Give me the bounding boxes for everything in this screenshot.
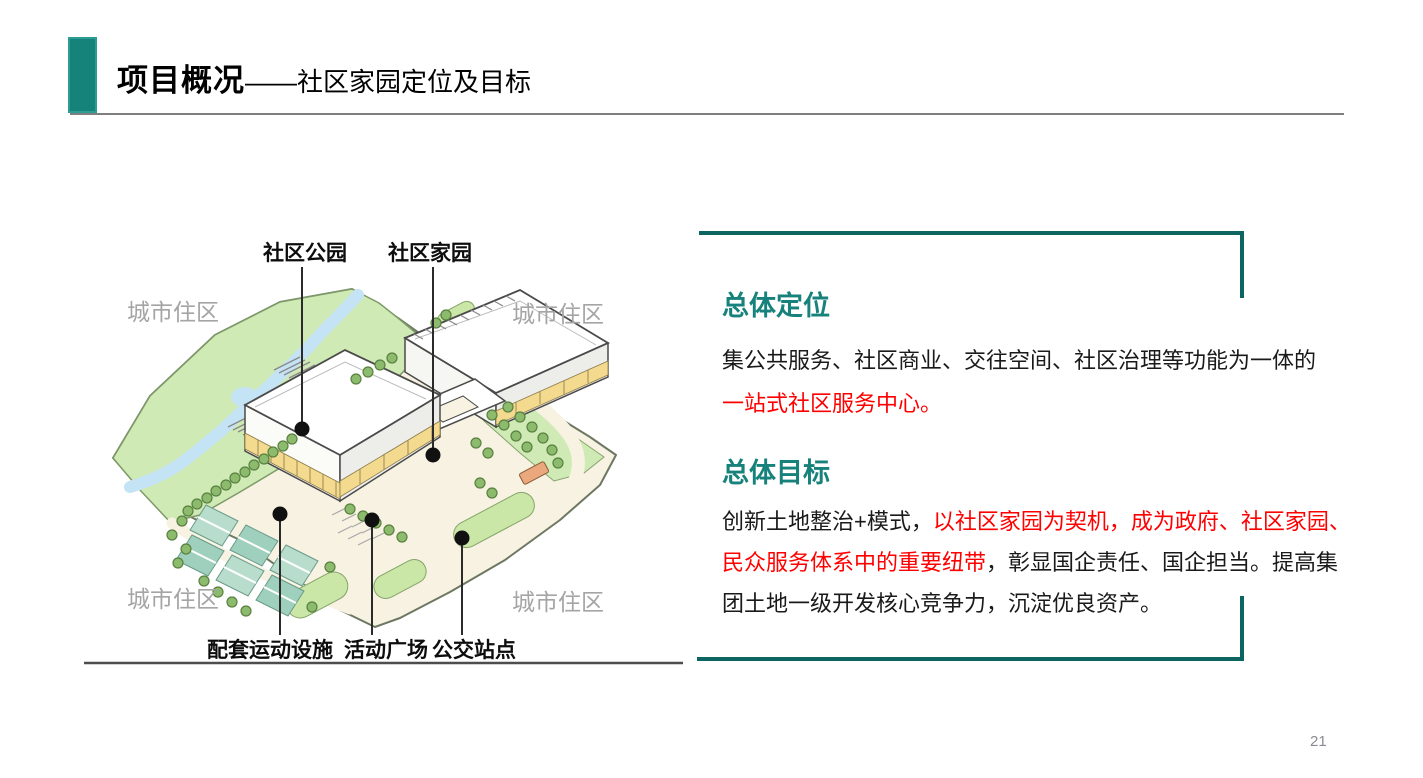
marker-home — [426, 448, 441, 463]
positioning-text: 集公共服务、社区商业、交往空间、社区治理等功能为一体的 一站式社区服务中心。 — [722, 339, 1372, 425]
label-bus-stop: 公交站点 — [432, 638, 516, 662]
goal-seg2: 以社区家园为契机，成为政府、社区家园、 — [933, 509, 1351, 534]
positioning-title: 总体定位 — [722, 284, 830, 323]
positioning-line1: 集公共服务、社区商业、交往空间、社区治理等功能为一体的 — [722, 339, 1372, 382]
marker-park — [295, 422, 310, 437]
page-title: 项目概况——社区家园定位及目标 — [117, 55, 531, 100]
site-plan-svg: 社区公园 社区家园 城市住区 城市住区 城市住区 城市住区 配套运动设施 活动广… — [84, 215, 684, 665]
goal-seg5: 团土地一级开发核心竞争力，沉淀优良资产。 — [722, 591, 1162, 616]
label-urban-bottom-left: 城市住区 — [127, 586, 219, 612]
positioning-line2: 一站式社区服务中心。 — [722, 382, 1372, 425]
goal-text: 创新土地整治+模式，以社区家园为契机，成为政府、社区家园、 民众服务体系中的重要… — [722, 501, 1372, 624]
label-sports-facilities: 配套运动设施 — [207, 638, 333, 662]
page-title-main: 项目概况 — [117, 55, 245, 100]
goal-line3: 团土地一级开发核心竞争力，沉淀优良资产。 — [722, 583, 1372, 624]
label-urban-top-right: 城市住区 — [512, 301, 604, 327]
page-title-sub: ——社区家园定位及目标 — [245, 62, 531, 99]
goal-seg3: 民众服务体系中的重要纽带 — [722, 550, 986, 575]
label-community-park: 社区公园 — [262, 241, 347, 265]
label-urban-top-left: 城市住区 — [127, 299, 219, 325]
panel-border-bottom — [697, 657, 1244, 661]
marker-plaza — [365, 513, 380, 528]
label-urban-bottom-right: 城市住区 — [512, 589, 604, 615]
goal-line2: 民众服务体系中的重要纽带，彰显国企责任、国企担当。提高集 — [722, 542, 1372, 583]
site-plan-diagram: 社区公园 社区家园 城市住区 城市住区 城市住区 城市住区 配套运动设施 活动广… — [84, 215, 684, 665]
goal-seg1: 创新土地整治+模式， — [722, 509, 933, 534]
title-divider — [70, 113, 1344, 115]
goal-seg4: ，彰显国企责任、国企担当。提高集 — [986, 550, 1338, 575]
marker-bus — [455, 531, 470, 546]
goal-line1: 创新土地整治+模式，以社区家园为契机，成为政府、社区家园、 — [722, 501, 1372, 542]
panel-border-top-right — [1240, 231, 1244, 298]
label-community-home: 社区家园 — [387, 241, 472, 265]
marker-sports — [273, 507, 288, 522]
page-number: 21 — [1310, 733, 1327, 750]
title-accent-bar — [68, 37, 97, 113]
panel-border-top — [699, 231, 1244, 235]
goal-title: 总体目标 — [722, 451, 830, 490]
label-activity-plaza: 活动广场 — [344, 638, 428, 662]
